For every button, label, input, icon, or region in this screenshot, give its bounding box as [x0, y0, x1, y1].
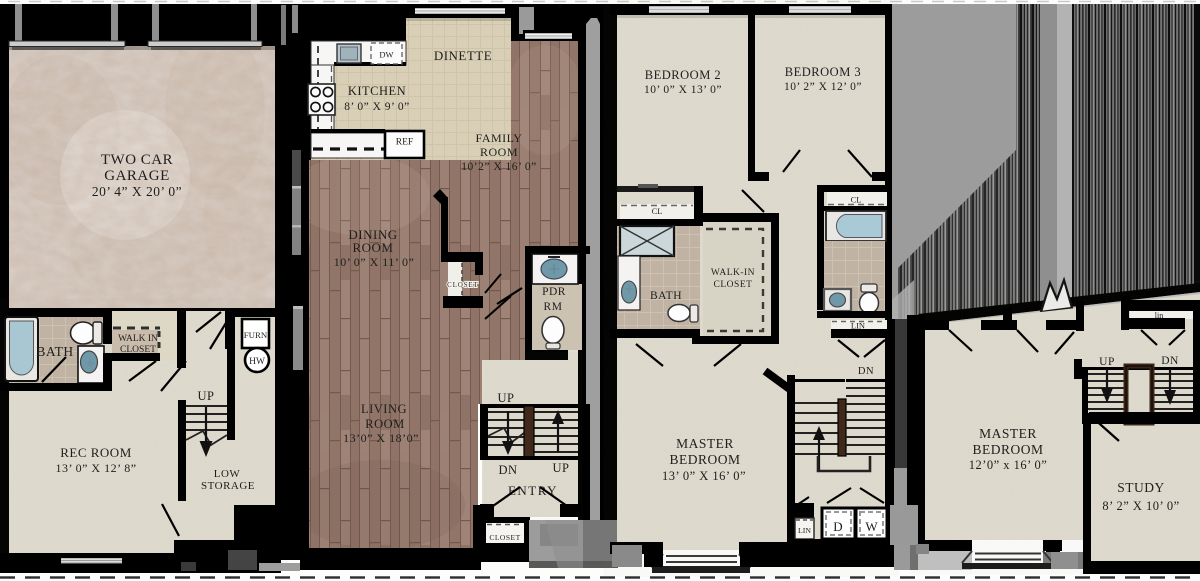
svg-text:WALK-IN: WALK-IN: [711, 268, 755, 278]
svg-text:20’ 4” X 20’ 0”: 20’ 4” X 20’ 0”: [92, 184, 182, 199]
svg-text:ROOM: ROOM: [480, 145, 518, 159]
svg-text:ROOM: ROOM: [365, 417, 405, 431]
svg-text:BEDROOM: BEDROOM: [972, 442, 1043, 457]
svg-text:BATH: BATH: [36, 344, 73, 359]
svg-text:13’0” X 18’0”: 13’0” X 18’0”: [343, 431, 419, 445]
svg-text:DN: DN: [1161, 355, 1179, 367]
svg-text:FURN: FURN: [244, 330, 268, 340]
svg-text:RM: RM: [544, 301, 563, 313]
svg-text:PDR: PDR: [542, 286, 566, 298]
svg-text:10’ 2” X 12’ 0”: 10’ 2” X 12’ 0”: [784, 81, 862, 93]
svg-text:12’0” x 16’ 0”: 12’0” x 16’ 0”: [969, 458, 1048, 472]
svg-text:BEDROOM: BEDROOM: [669, 452, 740, 467]
svg-text:FAMILY: FAMILY: [476, 131, 523, 145]
svg-text:DN: DN: [858, 366, 874, 377]
svg-text:HW: HW: [249, 357, 265, 367]
svg-text:MASTER: MASTER: [676, 436, 734, 451]
svg-text:BEDROOM 2: BEDROOM 2: [645, 68, 721, 82]
svg-text:TWO CAR: TWO CAR: [101, 152, 173, 168]
svg-text:13’ 0” X 12’ 8”: 13’ 0” X 12’ 8”: [55, 461, 136, 475]
svg-text:BATH: BATH: [650, 290, 682, 302]
svg-text:CLOSET: CLOSET: [447, 282, 479, 289]
svg-text:BEDROOM 3: BEDROOM 3: [785, 65, 861, 79]
svg-text:UP: UP: [553, 461, 570, 475]
svg-text:REF: REF: [396, 138, 413, 148]
svg-text:CLOSET: CLOSET: [714, 280, 753, 290]
svg-text:DW: DW: [379, 50, 393, 60]
svg-text:13’ 0” X 16’ 0”: 13’ 0” X 16’ 0”: [662, 469, 746, 483]
svg-text:DN: DN: [498, 463, 517, 477]
svg-text:CLOSET: CLOSET: [489, 533, 520, 542]
svg-text:MASTER: MASTER: [979, 426, 1037, 441]
svg-text:10’2” X 16’ 0”: 10’2” X 16’ 0”: [461, 161, 536, 173]
svg-text:8’ 0” X 9’ 0”: 8’ 0” X 9’ 0”: [344, 101, 409, 113]
svg-text:CL: CL: [652, 206, 663, 216]
svg-text:REC ROOM: REC ROOM: [60, 445, 132, 460]
svg-text:W: W: [865, 519, 878, 534]
svg-text:DINETTE: DINETTE: [434, 48, 492, 63]
svg-text:10’ 0” X 11’ 0”: 10’ 0” X 11’ 0”: [334, 255, 415, 269]
svg-text:UP: UP: [198, 389, 215, 403]
svg-text:D: D: [833, 519, 842, 534]
svg-text:KITCHEN: KITCHEN: [348, 84, 406, 98]
svg-text:LIVING: LIVING: [361, 402, 407, 416]
svg-text:STORAGE: STORAGE: [201, 480, 255, 492]
svg-text:LIN: LIN: [798, 526, 811, 535]
svg-text:STUDY: STUDY: [1117, 480, 1165, 495]
svg-text:UP: UP: [498, 391, 515, 405]
svg-text:CL: CL: [851, 195, 862, 205]
svg-text:WALK IN: WALK IN: [118, 334, 158, 344]
svg-text:8’ 2” X 10’ 0”: 8’ 2” X 10’ 0”: [1102, 499, 1179, 513]
svg-text:ROOM: ROOM: [352, 240, 393, 255]
svg-text:10’ 0” X 13’ 0”: 10’ 0” X 13’ 0”: [644, 84, 722, 96]
svg-text:GARAGE: GARAGE: [104, 168, 170, 184]
svg-text:LOW: LOW: [214, 468, 241, 480]
svg-text:UP: UP: [1099, 356, 1115, 368]
